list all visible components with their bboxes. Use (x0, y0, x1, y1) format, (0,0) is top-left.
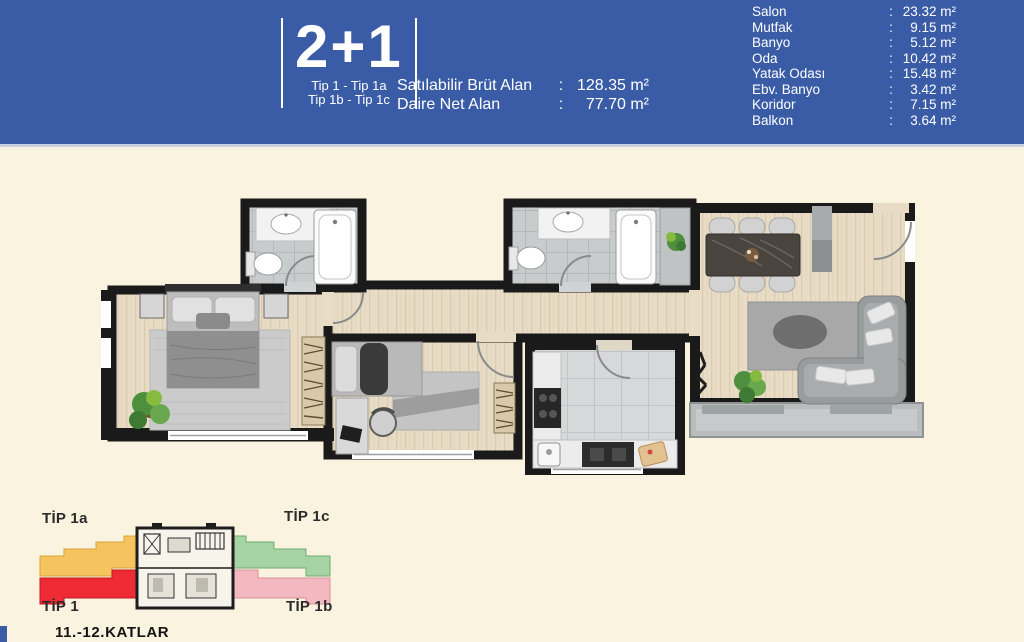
room-koridor (328, 285, 695, 338)
key-plan-label-tip1c: TİP 1c (284, 508, 330, 525)
wardrobe-bedroom (302, 337, 325, 425)
key-plan-label-tip1b: TİP 1b (286, 598, 333, 615)
key-plan-label-tip1a: TİP 1a (42, 510, 88, 527)
key-plan-core (137, 523, 233, 608)
key-plan (40, 523, 330, 608)
brochure-page: 2+1 Tip 1 - Tip 1a Tip 1b - Tip 1c Satıl… (0, 0, 1024, 642)
dining-set (706, 218, 800, 292)
key-plan-label-tip1: TİP 1 (42, 598, 79, 615)
room-balkon (690, 403, 923, 437)
floor-plan-canvas (0, 0, 1024, 642)
floors-label: 11.-12.KATLAR (55, 624, 169, 641)
floor-plan (101, 203, 923, 474)
page-edge-accent (0, 626, 7, 642)
